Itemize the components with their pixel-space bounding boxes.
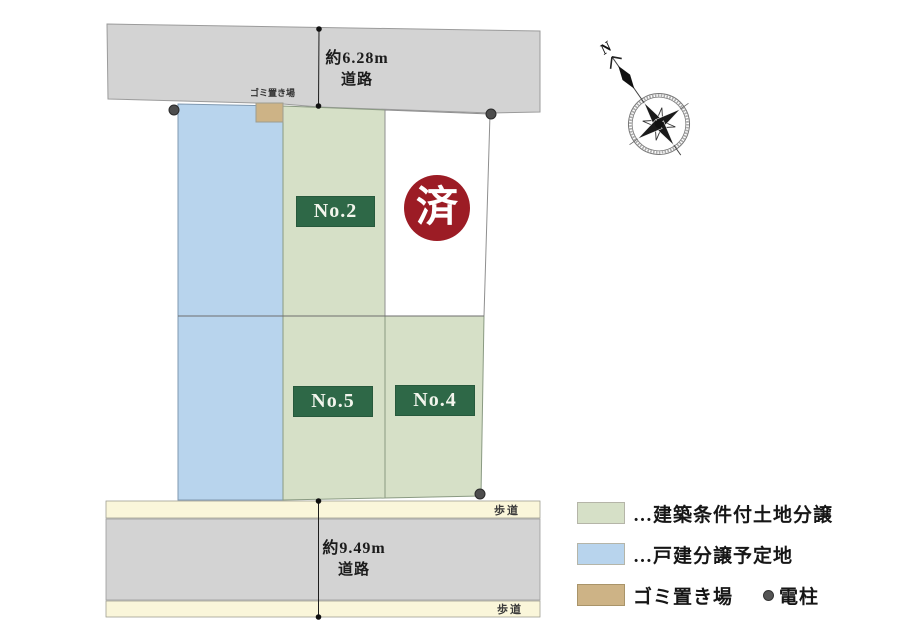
compass-rose-icon: N	[572, 21, 710, 175]
legend-row-blue: …戸建分譲予定地	[577, 542, 877, 566]
sidewalk-label-lower: 歩道	[497, 601, 523, 617]
legend-label-tan: ゴミ置き場	[633, 582, 733, 609]
site-plan-canvas: N 約6.28m 道路 ゴミ置き場 No.2 No.5 No.4 済 歩道 歩道…	[0, 0, 900, 636]
top-road-width-text: 約6.28m	[292, 48, 422, 70]
legend-label-green: …建築条件付土地分譲	[633, 500, 833, 527]
sold-badge: 済	[404, 175, 470, 241]
bottom-sidewalk-upper-shape	[106, 501, 540, 518]
utility-pole-legend-icon	[763, 590, 774, 601]
bottom-road-text: 道路	[289, 560, 419, 580]
legend-row-tan: ゴミ置き場 電柱	[577, 583, 877, 607]
lot-tag-no4: No.4	[395, 385, 475, 416]
utility-pole-dot	[169, 105, 179, 115]
legend-row-green: …建築条件付土地分譲	[577, 501, 877, 525]
garbage-site-shape	[256, 103, 283, 122]
legend-label-pole: 電柱	[779, 582, 819, 609]
legend-swatch-tan	[577, 584, 625, 606]
utility-pole-dot	[486, 109, 496, 119]
garbage-site-label: ゴミ置き場	[250, 86, 295, 99]
lot-tag-no5: No.5	[293, 386, 373, 417]
sidewalk-label-upper: 歩道	[494, 502, 520, 518]
lot-tag-no2: No.2	[296, 196, 375, 227]
bottom-road-width-text: 約9.49m	[289, 538, 419, 560]
legend-swatch-green	[577, 502, 625, 524]
utility-pole-dot	[475, 489, 485, 499]
legend-label-blue: …戸建分譲予定地	[633, 541, 793, 568]
lot-blue-shape	[178, 104, 283, 500]
top-road-label: 約6.28m 道路	[292, 48, 422, 90]
legend: …建築条件付土地分譲 …戸建分譲予定地 ゴミ置き場 電柱	[577, 501, 877, 624]
compass-north-label: N	[596, 38, 616, 59]
bottom-road-label: 約9.49m 道路	[289, 538, 419, 580]
top-road-text: 道路	[292, 70, 422, 90]
bottom-sidewalk-lower-shape	[106, 601, 540, 617]
legend-swatch-blue	[577, 543, 625, 565]
